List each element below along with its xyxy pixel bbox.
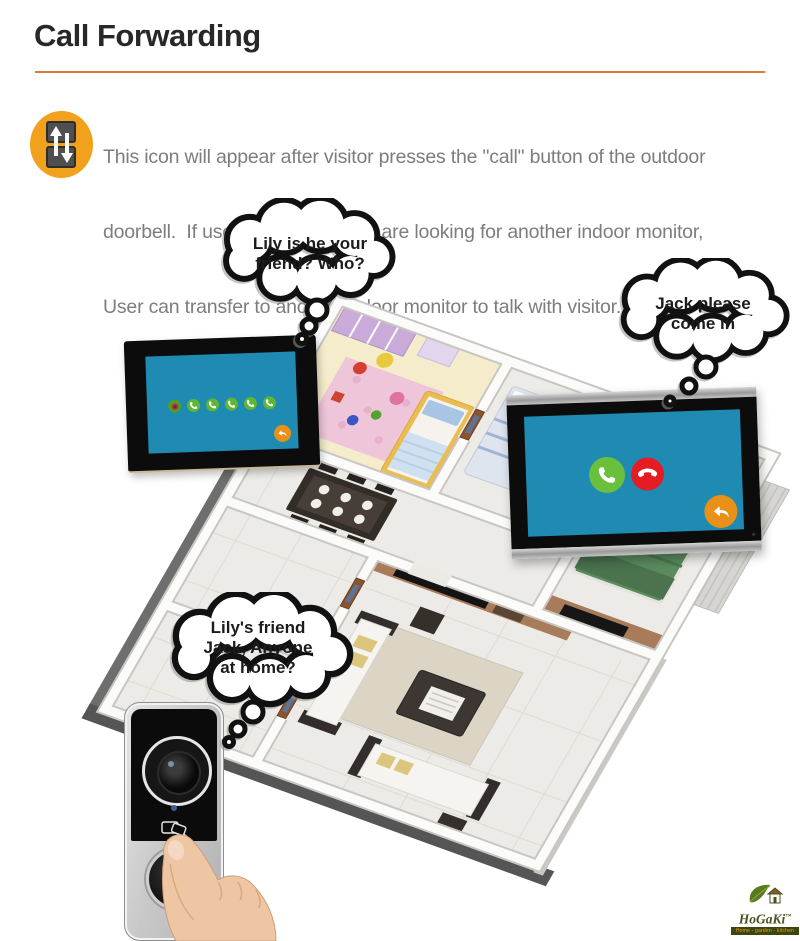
monitor-right-screen [524, 409, 744, 536]
call-forward-icon[interactable] [187, 399, 200, 412]
monitor-left-screen [145, 351, 298, 453]
call-forward-icon[interactable] [225, 397, 238, 410]
bubble-text-line: Jack, Anyone [204, 638, 313, 658]
bubble-text-line: at home? [220, 658, 296, 678]
logo-leaf-icon [746, 882, 784, 906]
logo-name: HoGaKi™ [731, 911, 799, 926]
doorbell-source-icon [168, 399, 181, 412]
bubble-text-line: friend? Who? [255, 254, 365, 274]
brand-logo: HoGaKi™ Home - garden - kitchen [731, 882, 799, 935]
answer-call-icon[interactable] [588, 456, 625, 493]
bubble-tail [666, 357, 716, 405]
pressing-finger [120, 820, 290, 941]
bubble-tail [298, 300, 328, 344]
thought-bubble-lily: Lily is he your friend? Who? [210, 198, 420, 348]
call-forward-icon[interactable] [263, 396, 276, 409]
back-icon[interactable] [274, 425, 292, 443]
hangup-call-icon[interactable] [630, 457, 664, 491]
power-led [752, 533, 755, 536]
call-forward-icon[interactable] [244, 397, 257, 410]
bubble-text: Lily is he your friend? Who? [210, 210, 410, 298]
bubble-text-line: Jack please [655, 294, 750, 314]
bubble-text-line: Lily's friend [211, 618, 306, 638]
bubble-text: Lily's friend Jack, Anyone at home? [158, 600, 358, 696]
thought-bubble-jack: Jack please come in [608, 258, 800, 413]
bubble-text-line: Lily is he your [253, 234, 367, 254]
thought-bubble-visitor: Lily's friend Jack, Anyone at home? [158, 592, 368, 754]
forward-target-list [168, 396, 276, 413]
page-root: Call Forwarding This icon will appear af… [0, 0, 800, 941]
logo-tagline: Home - garden - kitchen [731, 927, 799, 935]
indoor-monitor-left [124, 335, 320, 474]
monitor-right-frame [507, 397, 762, 550]
camera-lens-icon [157, 751, 201, 795]
bubble-tail [225, 702, 264, 747]
bubble-text-line: come in [671, 314, 735, 334]
logo-house-icon [768, 888, 782, 903]
back-icon[interactable] [704, 494, 738, 528]
status-indicator [171, 805, 177, 811]
call-forward-icon[interactable] [206, 398, 219, 411]
bubble-text: Jack please come in [608, 270, 798, 358]
